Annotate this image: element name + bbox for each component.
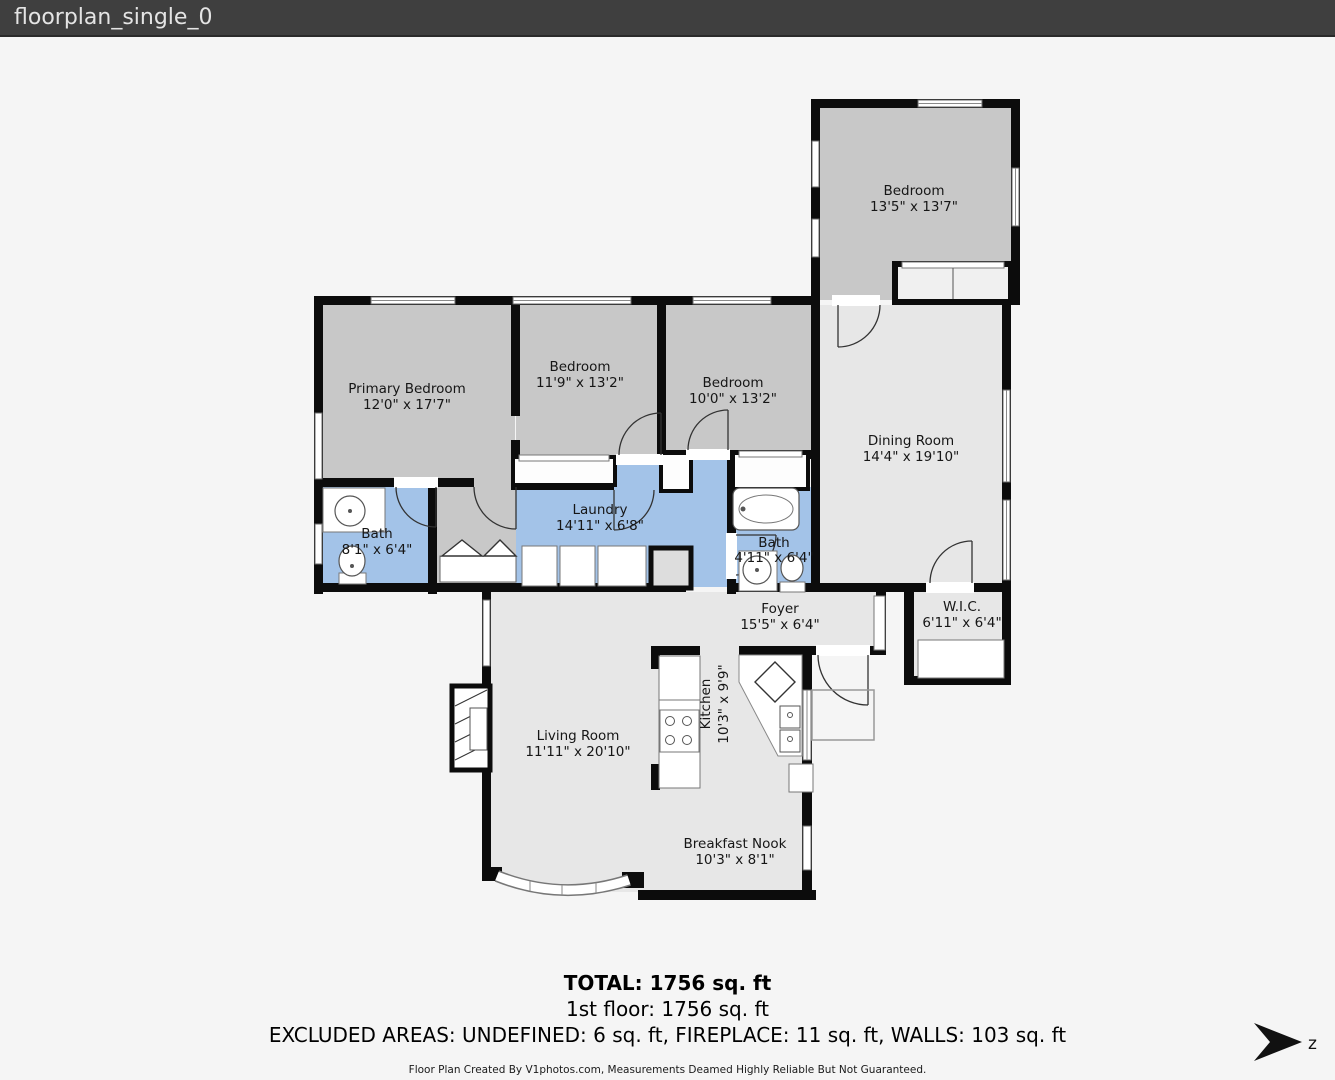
north-arrow-icon: z: [1240, 1015, 1330, 1070]
porch-step: [812, 690, 874, 740]
floorplan-canvas: Bedroom 13'5" x 13'7" Primary Bedroom 12…: [0, 39, 1335, 959]
room-label: Kitchen: [698, 679, 714, 730]
room-dims: 6'11" x 6'4": [922, 615, 1001, 631]
room-label: Primary Bedroom: [348, 381, 466, 397]
room-dims: 10'3" x 8'1": [695, 852, 774, 868]
room-label: Breakfast Nook: [684, 836, 787, 852]
sliding-door-vestibule: [874, 596, 885, 650]
room-label: Bath: [361, 526, 392, 542]
room-label: Laundry: [572, 502, 627, 518]
room-dims: 14'4" x 19'10": [863, 449, 960, 465]
area-summary: TOTAL: 1756 sq. ft 1st floor: 1756 sq. f…: [0, 970, 1335, 1076]
washer-icon: [522, 546, 557, 586]
dryer-icon: [560, 546, 595, 586]
room-dims: 14'11" x 6'8": [556, 518, 644, 534]
room-label: Bath: [758, 535, 789, 551]
total-area: TOTAL: 1756 sq. ft: [0, 970, 1335, 996]
room-label: Dining Room: [868, 433, 954, 449]
laundry-fixtures: [522, 546, 691, 588]
room-label: Foyer: [761, 601, 799, 617]
room-dims: 11'11" x 20'10": [525, 744, 630, 760]
room-dims: 13'5" x 13'7": [870, 199, 958, 215]
utility-closet: [651, 548, 691, 588]
room-dims: 10'0" x 13'2": [689, 391, 777, 407]
window-title: floorplan_single_0: [0, 0, 1335, 35]
room-dims: 15'5" x 6'4": [740, 617, 819, 633]
room-label: Bedroom: [702, 375, 763, 391]
excluded-areas: EXCLUDED AREAS: UNDEFINED: 6 sq. ft, FIR…: [0, 1022, 1335, 1048]
room-label: Bedroom: [883, 183, 944, 199]
room-label: Bedroom: [549, 359, 610, 375]
door-entry: [816, 645, 870, 705]
room-dims: 8'1" x 6'4": [342, 542, 413, 558]
floor1-area: 1st floor: 1756 sq. ft: [0, 996, 1335, 1022]
bathtub-icon: [733, 488, 799, 530]
room-dims: 11'9" x 13'2": [536, 375, 624, 391]
fireplace-icon: [452, 686, 490, 770]
dishwasher-icon: [789, 764, 813, 792]
laundry-counter: [598, 546, 646, 586]
room-dims: 12'0" x 17'7": [363, 397, 451, 413]
room-label: W.I.C.: [943, 599, 981, 615]
room-dims: 4'11" x 6'4": [734, 550, 813, 566]
credit-line: Floor Plan Created By V1photos.com, Meas…: [0, 1064, 1335, 1076]
window-titlebar: floorplan_single_0: [0, 0, 1335, 37]
stove-icon: [660, 710, 699, 752]
room-dims: 10'3" x 9'9": [716, 664, 732, 743]
room-label: Living Room: [537, 728, 620, 744]
fridge-icon: [659, 656, 700, 700]
north-label: z: [1308, 1034, 1317, 1054]
